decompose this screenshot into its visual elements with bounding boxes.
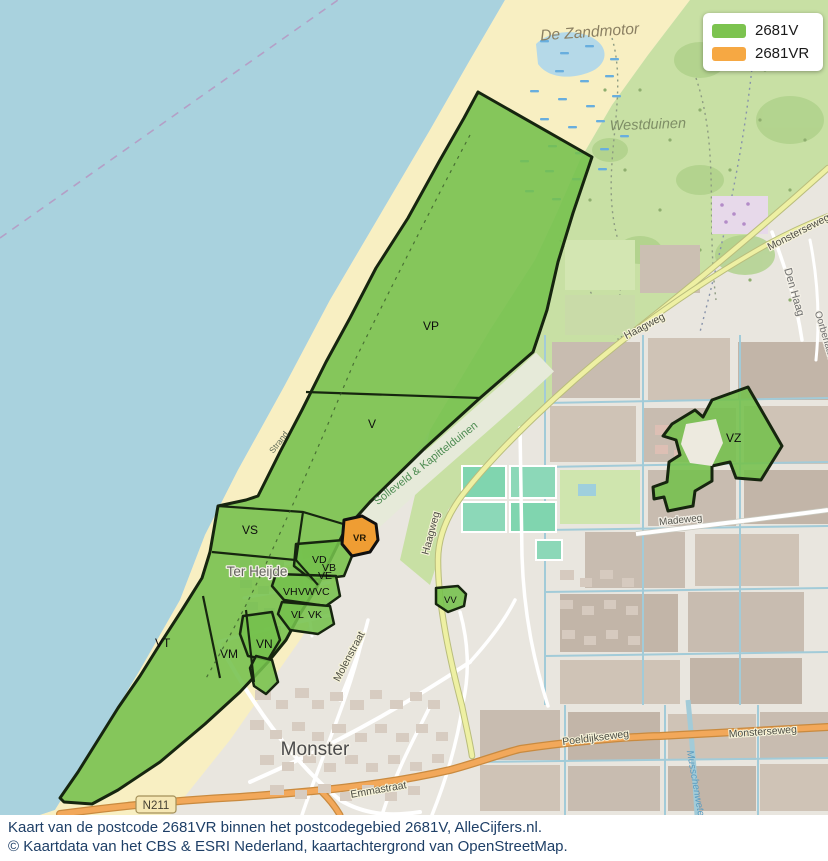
caption: Kaart van de postcode 2681VR binnen het …: [0, 815, 828, 861]
label-vk: VK: [308, 609, 322, 621]
legend-swatch-orange: [711, 46, 747, 62]
label-vw: VW: [298, 586, 315, 598]
label-v: V: [368, 417, 376, 431]
label-vn: VN: [256, 637, 273, 651]
label-n211: N211: [143, 800, 170, 812]
page: VP V VS VT VM VN VD VB VE VH VW VC VL VK…: [0, 0, 828, 861]
label-vv: VV: [444, 595, 457, 606]
legend-row-2681VR: 2681VR: [711, 46, 815, 62]
legend-row-2681V: 2681V: [711, 23, 815, 39]
label-vr: VR: [353, 533, 366, 544]
label-westduinen: Westduinen: [609, 116, 686, 135]
legend: 2681V 2681VR: [703, 13, 823, 71]
label-vs: VS: [242, 523, 258, 537]
label-vm: VM: [220, 647, 238, 661]
caption-line2: © Kaartdata van het CBS & ESRI Nederland…: [8, 838, 828, 857]
n211-badge: N211: [136, 796, 176, 813]
legend-swatch-green: [711, 23, 747, 39]
legend-label-2681VR: 2681VR: [755, 46, 809, 61]
pond: [578, 484, 596, 496]
label-vt: VT: [155, 636, 171, 650]
label-vh: VH: [283, 586, 298, 598]
label-vc: VC: [315, 586, 330, 598]
caption-line1: Kaart van de postcode 2681VR binnen het …: [8, 819, 828, 838]
label-ter-heijde: Ter Heijde: [227, 564, 288, 579]
legend-label-2681V: 2681V: [755, 23, 798, 38]
label-ve: VE: [318, 570, 332, 582]
label-vp: VP: [423, 319, 439, 333]
map[interactable]: VP V VS VT VM VN VD VB VE VH VW VC VL VK…: [0, 0, 828, 815]
label-vl: VL: [291, 609, 304, 621]
map-canvas[interactable]: VP V VS VT VM VN VD VB VE VH VW VC VL VK…: [0, 0, 828, 815]
label-vz: VZ: [726, 431, 741, 445]
label-monster: Monster: [281, 739, 350, 760]
